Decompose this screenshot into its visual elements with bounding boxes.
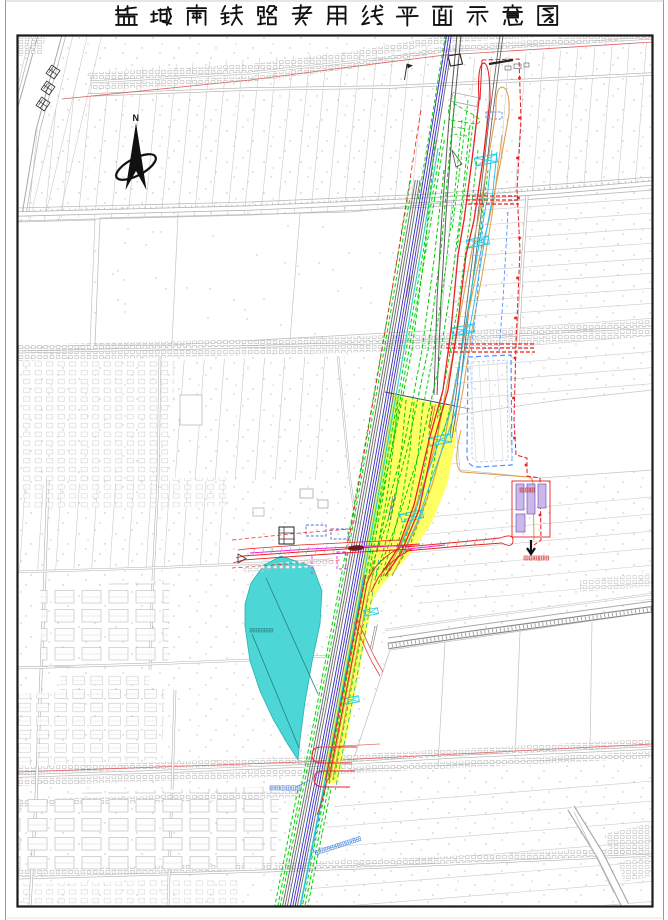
- svg-text:N: N: [133, 113, 140, 123]
